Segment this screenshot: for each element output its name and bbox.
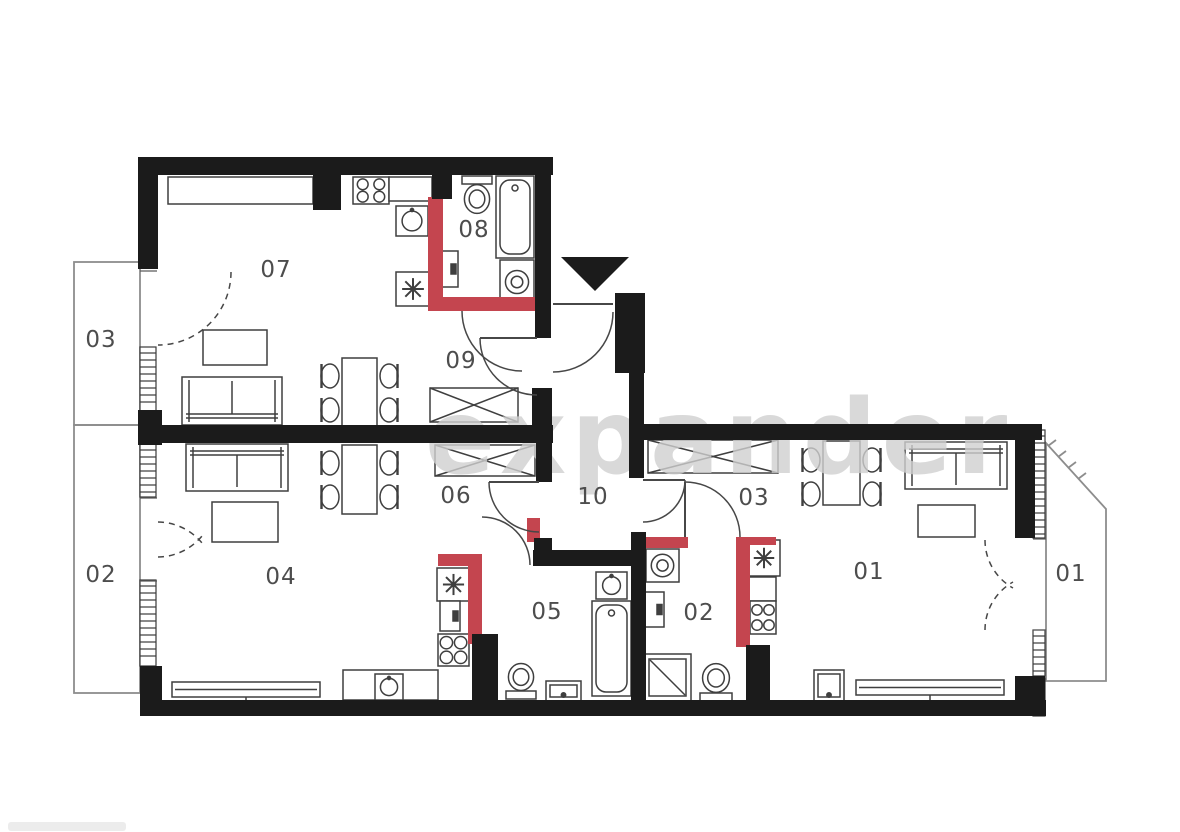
- bathtub-symbol: [496, 176, 534, 258]
- kitchen-counter-symbol: [748, 577, 776, 601]
- wall-segment: [1015, 424, 1035, 538]
- plumbing-wall-segment: [468, 554, 482, 644]
- wall-segment: [1015, 676, 1045, 716]
- coffee-table-symbol: [203, 330, 267, 365]
- wall-segment: [631, 532, 646, 702]
- shower-symbol: [644, 654, 691, 701]
- room-label-08: 08: [458, 217, 489, 243]
- appliance-symbol: [645, 592, 664, 627]
- window: [140, 444, 156, 497]
- window: [140, 580, 156, 666]
- plumbing-wall-segment: [428, 197, 443, 311]
- room-label-10: 10: [577, 484, 608, 510]
- bathtub-symbol: [592, 601, 631, 696]
- wall-segment: [534, 538, 552, 552]
- wall-segment: [140, 700, 1046, 716]
- dining-table-symbol: [342, 358, 377, 427]
- chair-symbol: [321, 485, 339, 509]
- room-label-04: 04: [265, 564, 296, 590]
- floor-plan-page: expander07080906100504030201030201: [0, 0, 1180, 832]
- toilet-symbol: [462, 176, 492, 213]
- coffee-table-symbol: [212, 502, 278, 542]
- chair-symbol: [321, 398, 339, 422]
- chair-symbol: [321, 364, 339, 388]
- plumbing-wall-segment: [428, 297, 535, 311]
- wall-segment: [532, 388, 552, 443]
- chair-symbol: [380, 451, 398, 475]
- chair-symbol: [380, 364, 398, 388]
- wall-segment: [535, 157, 551, 338]
- room-label-03: 03: [738, 485, 769, 511]
- wall-segment: [138, 157, 158, 269]
- plumbing-wall-segment: [736, 537, 750, 647]
- stove-burners-symbol: [438, 634, 469, 666]
- room-label-06: 06: [440, 483, 471, 509]
- toilet-symbol: [506, 664, 536, 699]
- wall-segment: [533, 550, 631, 566]
- sofa-symbol: [182, 377, 282, 425]
- boiler-symbol: [396, 272, 430, 306]
- floor-plan-drawing: expander07080906100504030201030201: [0, 0, 1180, 832]
- washbasin-console-symbol: [546, 681, 581, 701]
- wall-segment: [746, 645, 770, 702]
- window: [1033, 630, 1045, 676]
- washing-machine-symbol: [646, 549, 679, 582]
- wall-segment: [536, 443, 552, 482]
- window: [140, 347, 156, 412]
- wall-segment: [140, 157, 553, 175]
- balcony-label-01: 01: [1055, 561, 1086, 587]
- room-label-09: 09: [445, 348, 476, 374]
- wall-segment: [432, 175, 452, 199]
- washbasin-symbol: [596, 572, 627, 599]
- coffee-table-symbol: [918, 505, 975, 537]
- wall-segment: [156, 425, 553, 443]
- balcony-label-02: 02: [85, 562, 116, 588]
- sofa-symbol: [186, 444, 288, 491]
- washbasin-console-symbol: [814, 670, 844, 701]
- chair-symbol: [380, 398, 398, 422]
- plumbing-wall-segment: [748, 537, 776, 545]
- footer-artifact: [8, 822, 126, 831]
- boiler-symbol: [748, 540, 780, 576]
- balcony-label-03: 03: [85, 327, 116, 353]
- plumbing-wall-segment: [643, 537, 688, 548]
- stove-burners-symbol: [750, 601, 776, 634]
- dining-table-symbol: [342, 445, 377, 514]
- boiler-symbol: [437, 568, 470, 601]
- chair-symbol: [321, 451, 339, 475]
- wall-segment: [472, 634, 498, 704]
- room-label-07: 07: [260, 257, 291, 283]
- wall-segment: [629, 424, 1042, 440]
- appliance-symbol: [440, 601, 460, 631]
- chair-symbol: [380, 485, 398, 509]
- room-label-02: 02: [683, 600, 714, 626]
- room-label-01: 01: [853, 559, 884, 585]
- kitchen-counter-symbol: [389, 177, 432, 201]
- toilet-symbol: [700, 664, 732, 701]
- kitchen-counter-symbol: [168, 177, 313, 204]
- room-label-05: 05: [531, 599, 562, 625]
- wall-segment: [313, 175, 341, 210]
- kitchen-sink-symbol: [375, 674, 403, 700]
- kitchen-sink-symbol: [396, 206, 428, 236]
- stove-burners-symbol: [353, 177, 389, 204]
- wall-segment: [615, 293, 645, 373]
